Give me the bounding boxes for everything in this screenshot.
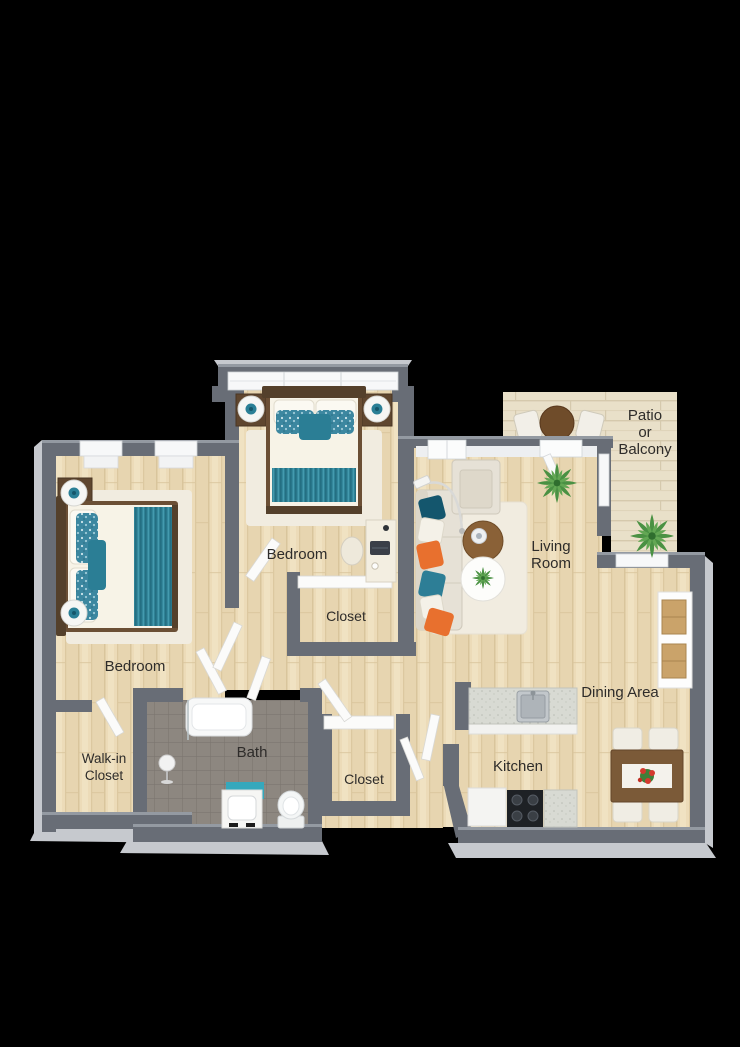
dining-chair: [649, 800, 678, 822]
table-lamp: [238, 396, 264, 422]
bed: [262, 386, 366, 514]
bedroom1-furniture: [56, 478, 178, 636]
desk-chair: [341, 537, 363, 565]
candle-holder: [472, 529, 487, 544]
floor-plan-image: Bedroom Closet Bedroom Living Room Patio…: [0, 0, 740, 1047]
bedroom2-label: Bedroom: [267, 546, 328, 563]
side-table: [461, 557, 505, 601]
dining-table: [611, 750, 683, 802]
coffee-cup: [372, 563, 378, 569]
accent-pillow: [299, 414, 331, 440]
dining-chair: [613, 728, 642, 750]
dining-chair: [613, 800, 642, 822]
pillow: [417, 517, 445, 545]
floor-plan-canvas: Bedroom Closet Bedroom Living Room Patio…: [0, 0, 740, 1047]
refrigerator: [468, 788, 506, 826]
counter-section: [544, 790, 577, 827]
bedroom2-closet-label: Closet: [326, 608, 366, 624]
table-lamp: [61, 600, 87, 626]
kitchen-lower-counter: [468, 788, 577, 827]
walk-in-closet-label-line2: Closet: [85, 768, 124, 783]
dining-area-label: Dining Area: [581, 684, 659, 701]
toilet: [278, 791, 304, 828]
cooktop: [507, 790, 543, 827]
potted-plant: [537, 463, 577, 503]
desk-lamp: [383, 525, 389, 531]
bedroom1-label: Bedroom: [105, 658, 166, 675]
patio-label-line3: Balcony: [618, 441, 672, 458]
bathtub: [186, 698, 252, 736]
living-room-window: [428, 440, 466, 459]
bookshelf: [658, 592, 692, 688]
living-room-label-line1: Living: [531, 538, 570, 555]
bedroom1-window: [80, 441, 122, 468]
walk-in-closet-label-line1: Walk-in: [82, 751, 127, 766]
table-lamp: [364, 396, 390, 422]
bath-label: Bath: [237, 744, 268, 761]
hall-closet-label: Closet: [344, 771, 384, 787]
dining-chair: [649, 728, 678, 750]
kitchen-label: Kitchen: [493, 758, 543, 775]
kitchen-counter: [455, 682, 577, 734]
hall-closet-door: [324, 716, 394, 729]
kitchen-sink: [517, 691, 549, 723]
patio-door-sill: [540, 440, 582, 457]
patio-side-window: [599, 454, 609, 506]
patio-label-line2: or: [638, 424, 651, 441]
accent-pillow: [88, 540, 106, 590]
patio-bottom-window: [616, 554, 668, 567]
patio-label-line1: Patio: [628, 407, 662, 424]
vanity-sink: [222, 790, 262, 828]
bedroom1-window: [155, 441, 197, 468]
potted-plant: [630, 514, 674, 558]
patio-table: [540, 406, 574, 440]
plant: [472, 567, 494, 589]
table-lamp: [61, 480, 87, 506]
living-room-label-line2: Room: [531, 555, 571, 572]
